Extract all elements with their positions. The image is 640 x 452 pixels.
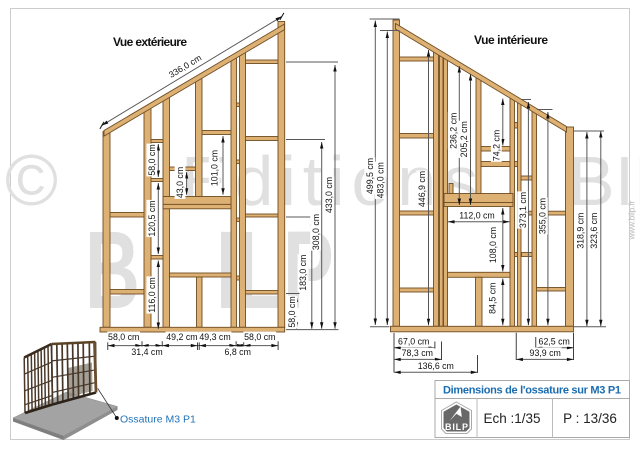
svg-text:62,5 cm: 62,5 cm (539, 337, 570, 347)
svg-text:205,2 cm: 205,2 cm (459, 121, 469, 157)
svg-text:BILP: BILP (445, 422, 468, 432)
svg-text:Vue intérieure: Vue intérieure (474, 33, 548, 47)
svg-text:499,5 cm: 499,5 cm (365, 158, 375, 194)
svg-text:308,0 cm: 308,0 cm (311, 214, 321, 250)
svg-text:136,6 cm: 136,6 cm (418, 361, 454, 371)
svg-text:58,0 cm: 58,0 cm (244, 332, 275, 342)
svg-text:433,0 cm: 433,0 cm (324, 177, 334, 213)
svg-text:84,5 cm: 84,5 cm (488, 283, 498, 314)
svg-text:120,5 cm: 120,5 cm (147, 200, 157, 236)
svg-text:101,0 cm: 101,0 cm (209, 150, 219, 186)
svg-text:58,0 cm: 58,0 cm (287, 296, 297, 327)
svg-text:373,1 cm: 373,1 cm (518, 192, 528, 228)
svg-text:49,2 cm: 49,2 cm (166, 332, 197, 342)
svg-text:93,9 cm: 93,9 cm (530, 348, 561, 358)
svg-text:78,3 cm: 78,3 cm (402, 348, 433, 358)
svg-text:446,9 cm: 446,9 cm (417, 171, 427, 207)
svg-text:318,9 cm: 318,9 cm (575, 213, 585, 249)
svg-text:P : 13/36: P : 13/36 (563, 411, 617, 426)
svg-text:Ech :1/35: Ech :1/35 (483, 411, 540, 426)
svg-text:Vue extérieure: Vue extérieure (113, 35, 187, 49)
svg-text:Ossature M3 P1: Ossature M3 P1 (120, 414, 196, 426)
svg-text:Dimensions de l'ossature sur M: Dimensions de l'ossature sur M3 P1 (443, 385, 621, 397)
svg-text:74,2 cm: 74,2 cm (492, 130, 502, 161)
svg-text:112,0 cm: 112,0 cm (459, 211, 495, 221)
svg-text:49,3 cm: 49,3 cm (199, 332, 230, 342)
svg-text:B: B (85, 209, 140, 332)
svg-text:108,0 cm: 108,0 cm (488, 227, 498, 263)
svg-text:www.bilp.fr: www.bilp.fr (627, 200, 636, 240)
svg-text:116,0 cm: 116,0 cm (147, 277, 157, 313)
svg-text:31,4 cm: 31,4 cm (131, 347, 162, 357)
svg-text:58,0 cm: 58,0 cm (147, 144, 157, 175)
svg-text:323,6 cm: 323,6 cm (589, 213, 599, 249)
svg-text:©: © (5, 141, 58, 221)
svg-text:355,0 cm: 355,0 cm (538, 198, 548, 234)
svg-text:58,0 cm: 58,0 cm (108, 332, 139, 342)
svg-text:6,8 cm: 6,8 cm (224, 347, 250, 357)
svg-text:183,0 cm: 183,0 cm (298, 255, 308, 291)
svg-text:67,0 cm: 67,0 cm (398, 337, 429, 347)
svg-text:236,2 cm: 236,2 cm (448, 113, 458, 149)
svg-text:483,0 cm: 483,0 cm (376, 162, 386, 198)
svg-text:43,0 cm: 43,0 cm (175, 167, 185, 198)
